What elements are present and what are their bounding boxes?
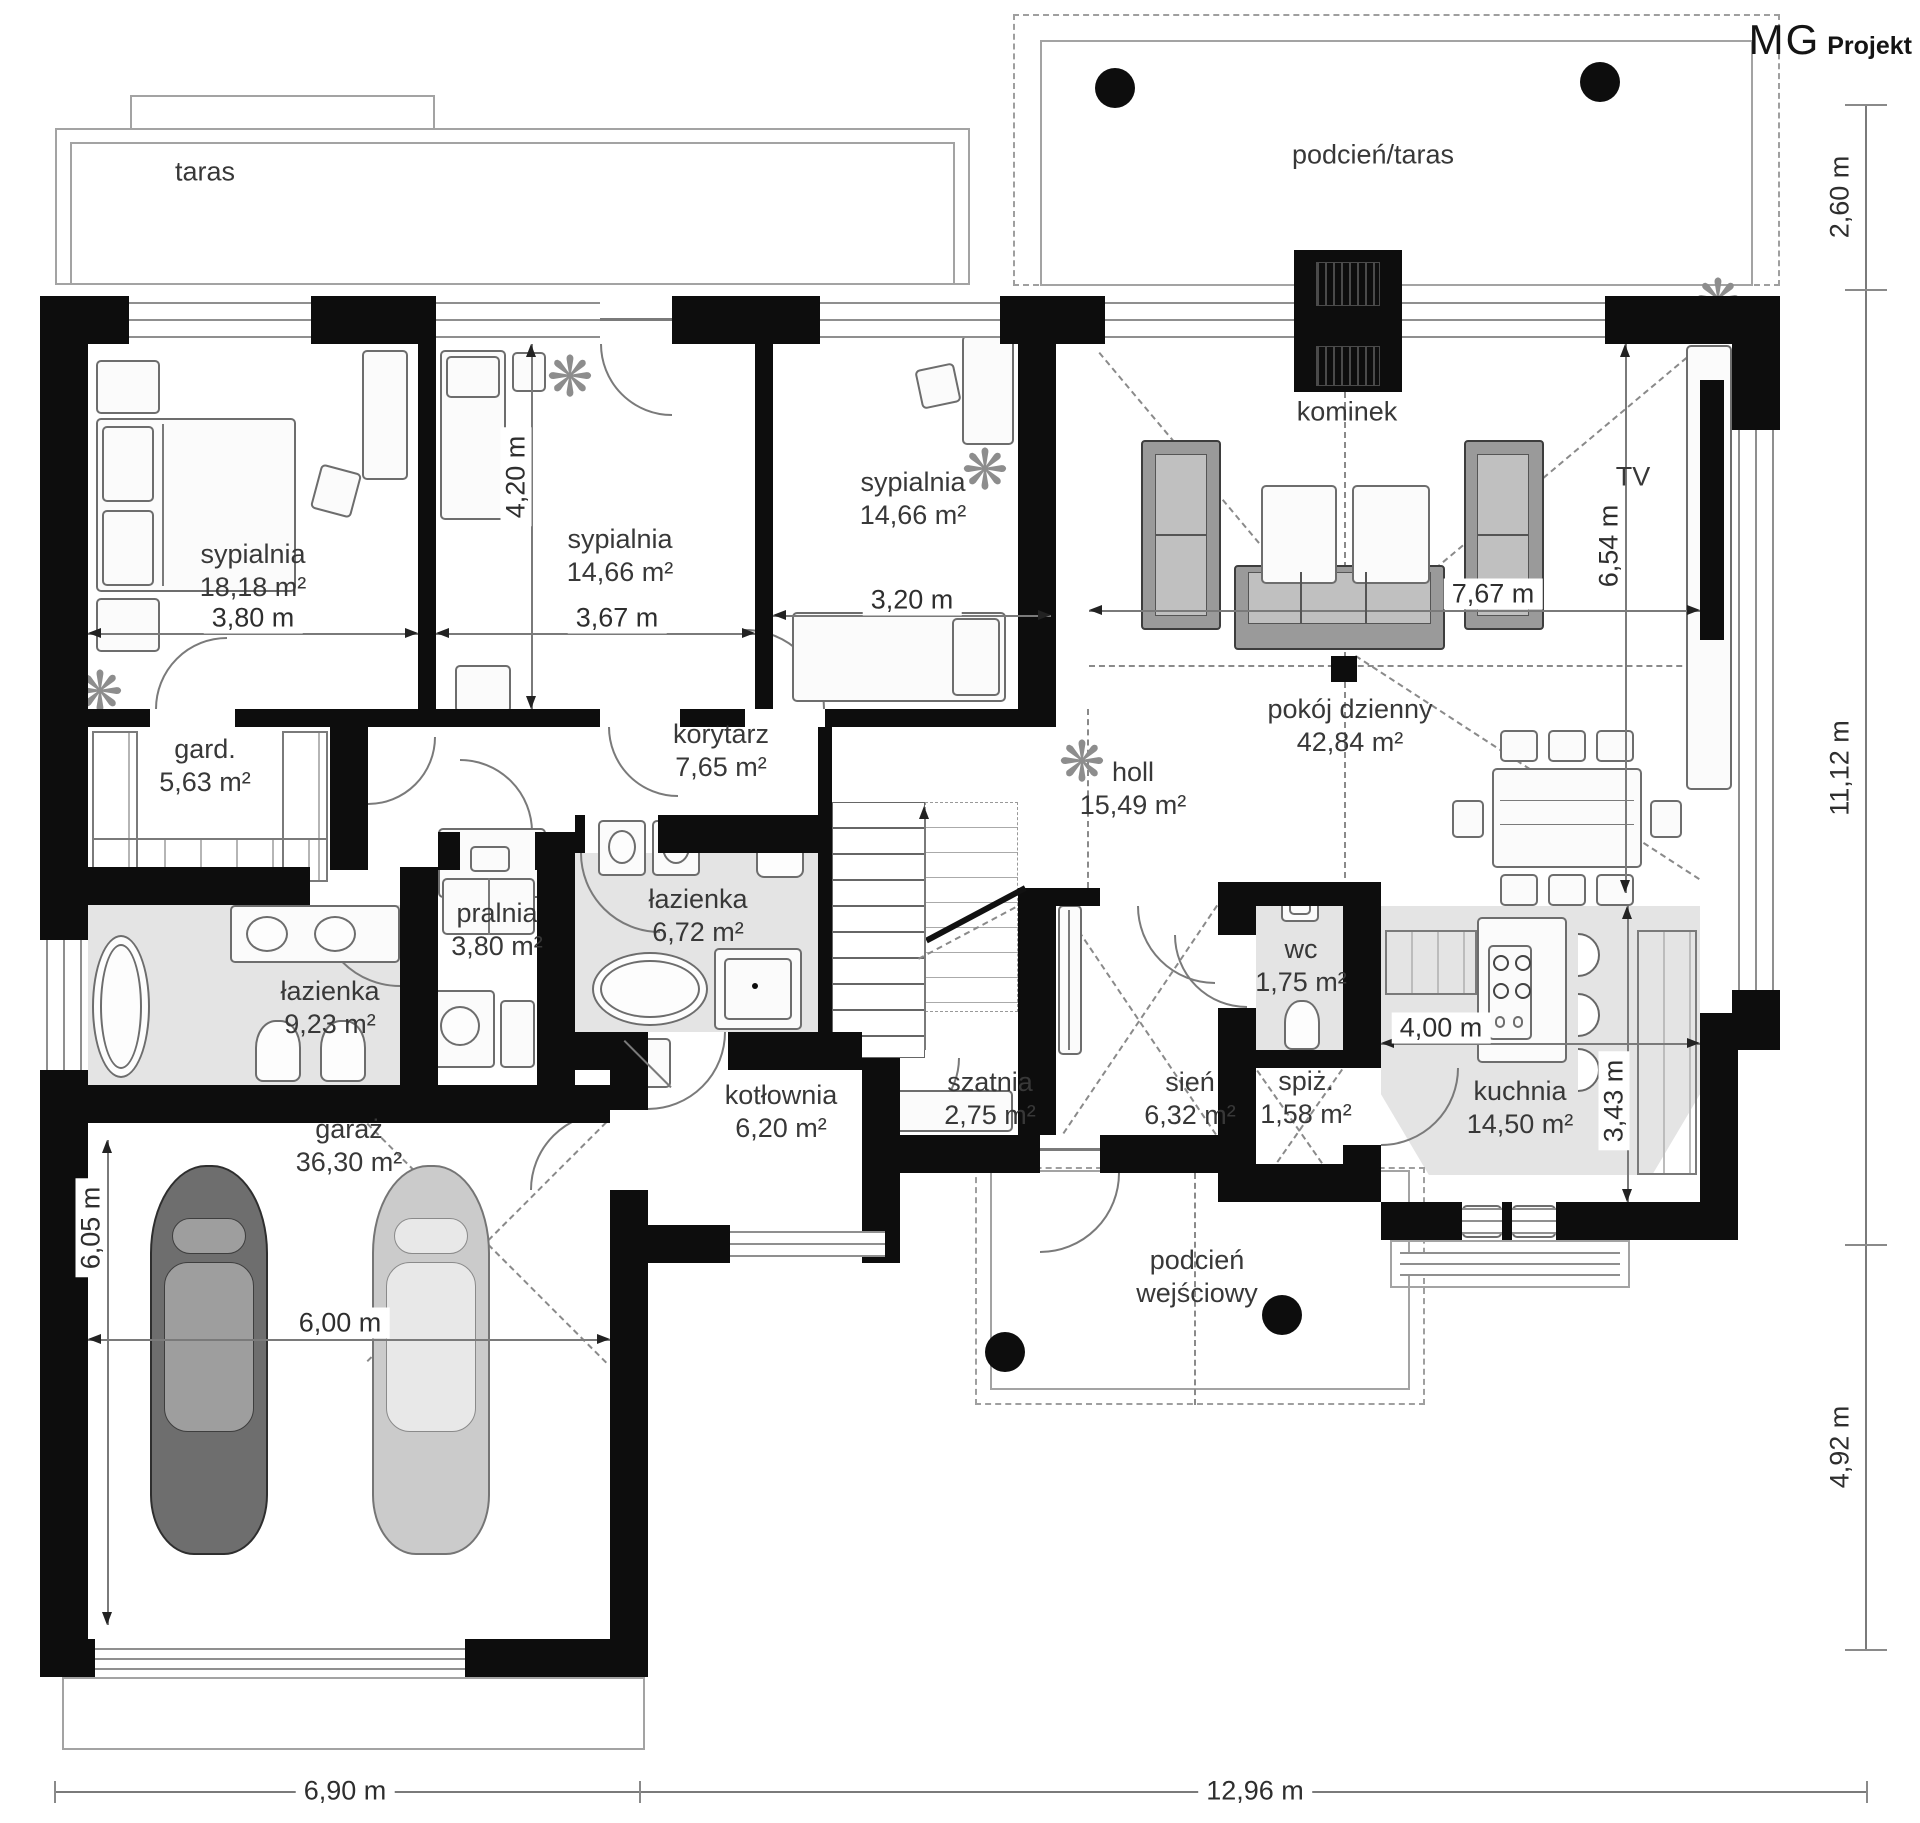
wall <box>1700 380 1724 640</box>
dim-kitchen-width: 4,00 m <box>1392 1013 1491 1044</box>
dim-tick <box>1845 1649 1887 1651</box>
line <box>1089 610 1700 612</box>
dim-kitchen-height: 3,43 m <box>1599 1052 1630 1151</box>
room-label-kuchnia: kuchnia14,50 m² <box>1467 1075 1574 1141</box>
wall <box>1732 990 1780 1050</box>
room-label-lazienka-1: łazienka9,23 m² <box>280 975 379 1041</box>
furniture <box>470 846 510 872</box>
outline <box>62 1677 645 1750</box>
kitchen-counter <box>1637 930 1697 1175</box>
room-label-sypialnia-3: sypialnia14,66 m² <box>860 466 967 532</box>
window <box>1462 1208 1502 1234</box>
dim-tick <box>639 1781 641 1803</box>
window <box>46 940 82 1070</box>
window <box>95 1648 465 1670</box>
dim-arrow <box>102 1140 112 1153</box>
dim-bed2-width: 3,67 m <box>568 603 667 634</box>
line <box>162 424 164 586</box>
dim-arrow <box>102 1612 112 1625</box>
furniture <box>1495 1016 1505 1028</box>
dim-arrow <box>526 344 536 357</box>
wall <box>438 832 460 870</box>
line <box>1365 572 1367 624</box>
kitchen-counter <box>1385 930 1477 995</box>
wall <box>728 1032 830 1070</box>
room-label-holl: holl15,49 m² <box>1080 756 1187 822</box>
window <box>1400 1252 1620 1276</box>
dim-arrow <box>1038 610 1051 620</box>
wall <box>1381 1202 1462 1240</box>
dim-tick <box>1845 1244 1887 1246</box>
label-kominek: kominek <box>1297 397 1398 428</box>
line <box>1865 105 1867 1650</box>
burner-icon <box>1515 983 1531 999</box>
wall <box>40 1070 88 1677</box>
dim-arrow <box>597 1334 610 1344</box>
room-label-sypialnia-1: sypialnia18,18 m² <box>200 538 307 604</box>
burner-icon <box>1493 983 1509 999</box>
wall <box>818 727 832 1058</box>
column-dot <box>752 983 758 989</box>
dim-arrow <box>88 628 101 638</box>
line <box>1500 800 1634 801</box>
dim-right-middle: 11,12 m <box>1825 712 1856 824</box>
column-dot <box>1262 1295 1302 1335</box>
wall <box>1502 1202 1512 1240</box>
window <box>1512 1208 1556 1234</box>
wall <box>672 296 820 344</box>
logo: MGProjekt <box>1732 16 1912 64</box>
window <box>129 302 311 338</box>
wall <box>1331 656 1357 682</box>
plant-icon: ❋ <box>962 442 1009 498</box>
furniture <box>914 362 961 409</box>
window <box>730 1231 885 1257</box>
wall <box>1218 888 1256 935</box>
column-dot <box>1095 68 1135 108</box>
dim-living-height: 6,54 m <box>1594 497 1625 596</box>
wall <box>830 1032 862 1070</box>
room-label-spiz: spiż.1,58 m² <box>1260 1065 1352 1131</box>
dim-right-bottom: 4,92 m <box>1825 1398 1856 1497</box>
room-label-szatnia: szatnia2,75 m² <box>944 1066 1036 1132</box>
floor-plan: MGProjekt taras podcień/taras kominek TV… <box>0 0 1920 1823</box>
dim-arrow <box>436 628 449 638</box>
room-label-kotlownia: kotłownia6,20 m² <box>725 1079 838 1145</box>
dim-arrow <box>742 628 755 638</box>
wall <box>400 867 438 1085</box>
dim-arrow <box>1622 1189 1632 1202</box>
furniture <box>962 335 1014 445</box>
furniture <box>1500 874 1538 906</box>
dim-tick <box>1845 104 1887 106</box>
dim-tick <box>54 1781 56 1803</box>
wall <box>658 815 830 853</box>
dim-bottom-right: 12,96 m <box>1198 1776 1312 1807</box>
logo-projekt: Projekt <box>1827 32 1912 60</box>
furniture <box>96 598 160 652</box>
window <box>436 302 600 338</box>
furniture <box>1548 874 1586 906</box>
dim-tick <box>1866 1781 1868 1803</box>
furniture <box>1596 730 1634 762</box>
wall <box>235 709 600 727</box>
wall <box>465 1639 610 1677</box>
dim-arrow <box>919 806 929 819</box>
wall <box>1294 312 1402 338</box>
fixture <box>100 944 142 1069</box>
furniture <box>455 665 511 713</box>
wall <box>1018 344 1056 709</box>
wall <box>40 709 150 727</box>
room-label-pralnia: pralnia3,80 m² <box>451 897 543 963</box>
label-taras: taras <box>175 157 235 188</box>
line <box>924 815 926 1050</box>
wall <box>610 1225 730 1263</box>
outline <box>130 95 435 130</box>
furniture <box>102 426 154 502</box>
furniture <box>1352 485 1430 584</box>
furniture <box>952 618 1000 696</box>
label-podcien-taras: podcień/taras <box>1292 140 1454 171</box>
label-podcien-wejsciowy: podcień wejściowy <box>1136 1244 1258 1310</box>
line <box>1625 344 1627 893</box>
line <box>1155 534 1207 536</box>
wall <box>1700 1050 1738 1240</box>
dim-garage-width: 6,00 m <box>291 1308 390 1339</box>
dim-arrow <box>773 610 786 620</box>
dim-bed1-width: 3,80 m <box>204 603 303 634</box>
wall <box>825 709 1056 727</box>
line <box>1300 572 1302 624</box>
wall <box>1018 888 1100 906</box>
logo-mg: MG <box>1749 16 1821 63</box>
line <box>531 344 533 709</box>
line <box>1477 534 1529 536</box>
dim-arrow <box>405 628 418 638</box>
dashed-line <box>1089 665 1732 667</box>
label-tv: TV <box>1616 462 1651 493</box>
dim-living-width: 7,67 m <box>1444 579 1543 610</box>
dim-arrow <box>1687 605 1700 615</box>
dim-arrow <box>1687 1038 1700 1048</box>
fireplace-hatch <box>1316 346 1380 386</box>
line <box>1068 910 1070 1050</box>
fixture <box>608 830 636 864</box>
line <box>600 318 672 321</box>
furniture <box>724 958 792 1020</box>
dim-bed2-height: 4,20 m <box>501 428 532 527</box>
dim-right-top: 2,60 m <box>1825 148 1856 247</box>
window <box>1738 430 1774 990</box>
room-label-korytarz: korytarz7,65 m² <box>673 718 769 784</box>
dim-bottom-left: 6,90 m <box>296 1776 395 1807</box>
furniture <box>1650 800 1682 838</box>
room-label-garaz: garaż36,30 m² <box>296 1113 403 1179</box>
car-light-roof <box>386 1262 476 1432</box>
window <box>820 302 1000 338</box>
wall <box>1000 296 1105 344</box>
room-label-lazienka-2: łazienka6,72 m² <box>648 883 747 949</box>
fixture <box>314 916 356 952</box>
wall <box>1732 296 1780 430</box>
furniture <box>446 356 500 398</box>
stairs-upper <box>925 802 1018 1012</box>
window <box>1105 302 1294 338</box>
line <box>1500 824 1634 825</box>
furniture <box>1452 800 1484 838</box>
dim-arrow <box>526 696 536 709</box>
burner-icon <box>1515 955 1531 971</box>
line <box>1040 1148 1100 1151</box>
room-label-gard: gard.5,63 m² <box>159 733 251 799</box>
furniture <box>512 352 546 392</box>
room-label-sien: sień6,32 m² <box>1144 1066 1236 1132</box>
furniture <box>1513 1016 1523 1028</box>
wall <box>40 867 310 905</box>
fixture <box>440 1006 480 1046</box>
room-label-pokoj-dzienny: pokój dzienny42,84 m² <box>1267 693 1432 759</box>
window <box>1402 302 1605 338</box>
fireplace-hatch <box>1316 262 1380 306</box>
furniture <box>1492 768 1642 868</box>
wall <box>575 815 585 853</box>
stairs <box>832 802 925 1058</box>
dim-arrow <box>88 1334 101 1344</box>
wall <box>40 296 88 940</box>
line <box>107 1140 109 1625</box>
car-dark-roof <box>164 1262 254 1432</box>
dim-arrow <box>1089 605 1102 615</box>
wall <box>330 727 368 870</box>
dim-arrow <box>1620 880 1630 893</box>
dim-bed3-width: 3,20 m <box>863 585 962 616</box>
furniture <box>362 350 408 480</box>
furniture <box>1058 905 1082 1055</box>
wall <box>311 296 436 344</box>
furniture <box>1548 730 1586 762</box>
wall <box>880 1135 1040 1173</box>
furniture <box>96 360 160 414</box>
dim-tick <box>1845 289 1887 291</box>
dim-garage-height: 6,05 m <box>76 1179 107 1278</box>
door-arc <box>600 272 744 416</box>
toilet <box>1284 1000 1320 1050</box>
furniture <box>1261 485 1337 584</box>
wall <box>755 344 773 709</box>
furniture <box>102 510 154 586</box>
column-dot <box>1580 62 1620 102</box>
room-label-wc: wc1,75 m² <box>1255 933 1347 999</box>
wall <box>418 344 436 709</box>
furniture <box>500 1000 535 1068</box>
burner-icon <box>1493 955 1509 971</box>
furniture <box>310 463 362 518</box>
fixture <box>600 960 700 1018</box>
car-light-roof <box>394 1218 468 1254</box>
wall <box>1218 1164 1381 1202</box>
furniture <box>1500 730 1538 762</box>
dim-arrow <box>1622 906 1632 919</box>
wall <box>1343 882 1381 1068</box>
dim-arrow <box>1620 344 1630 357</box>
plant-icon: ❋ <box>547 349 594 405</box>
room-label-sypialnia-2: sypialnia14,66 m² <box>567 523 674 589</box>
column-dot <box>985 1332 1025 1372</box>
car-dark-roof <box>172 1218 246 1254</box>
wall <box>40 1639 95 1677</box>
line <box>88 1339 610 1341</box>
wall <box>610 1190 648 1677</box>
fixture <box>246 916 288 952</box>
